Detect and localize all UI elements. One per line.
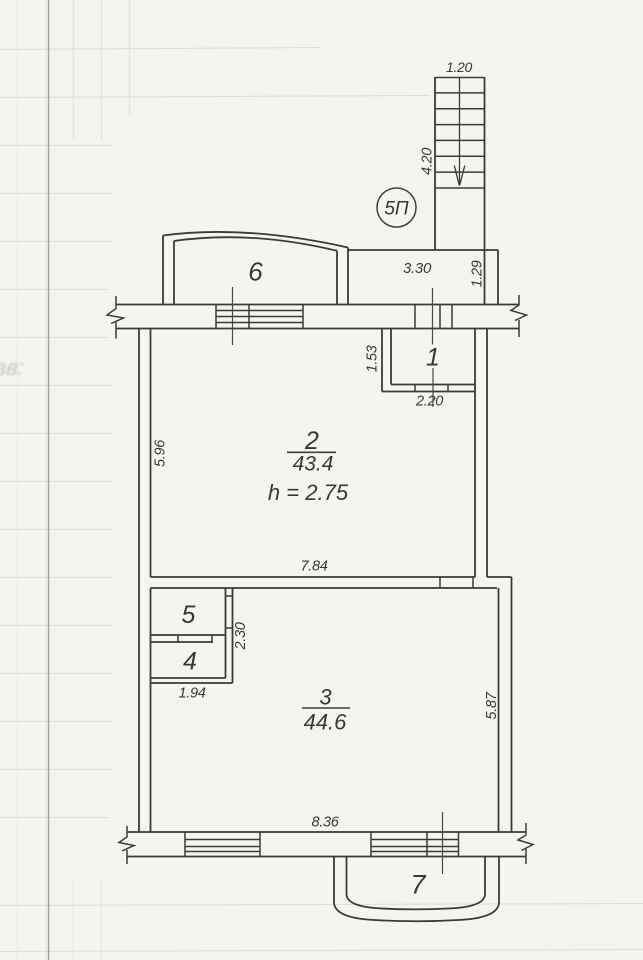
svg-text:1.94: 1.94 [178, 686, 205, 702]
svg-text:3: 3 [319, 685, 332, 710]
svg-text:3.30: 3.30 [403, 260, 432, 277]
svg-text:6: 6 [248, 256, 263, 286]
svg-text:4.20: 4.20 [420, 148, 436, 175]
svg-text:5: 5 [182, 601, 196, 629]
svg-text:1.29: 1.29 [470, 260, 486, 287]
svg-text:h = 2.75: h = 2.75 [268, 480, 349, 505]
svg-text:2: 2 [304, 427, 319, 455]
svg-text:2.30: 2.30 [233, 622, 249, 650]
svg-text:1.20: 1.20 [446, 59, 473, 75]
svg-text:1: 1 [426, 344, 440, 372]
svg-text:7.84: 7.84 [300, 559, 327, 575]
svg-text:1.53: 1.53 [365, 345, 381, 372]
svg-text:7: 7 [410, 870, 426, 900]
svg-text:5.96: 5.96 [153, 439, 169, 467]
svg-text:зв:: зв: [0, 355, 24, 380]
svg-text:2.20: 2.20 [415, 394, 443, 410]
svg-text:4: 4 [183, 648, 197, 676]
svg-text:43.4: 43.4 [293, 453, 334, 476]
svg-text:5П: 5П [384, 199, 409, 220]
svg-text:44.6: 44.6 [304, 710, 348, 735]
svg-text:5.87: 5.87 [484, 691, 500, 719]
svg-text:8.36: 8.36 [311, 815, 339, 831]
